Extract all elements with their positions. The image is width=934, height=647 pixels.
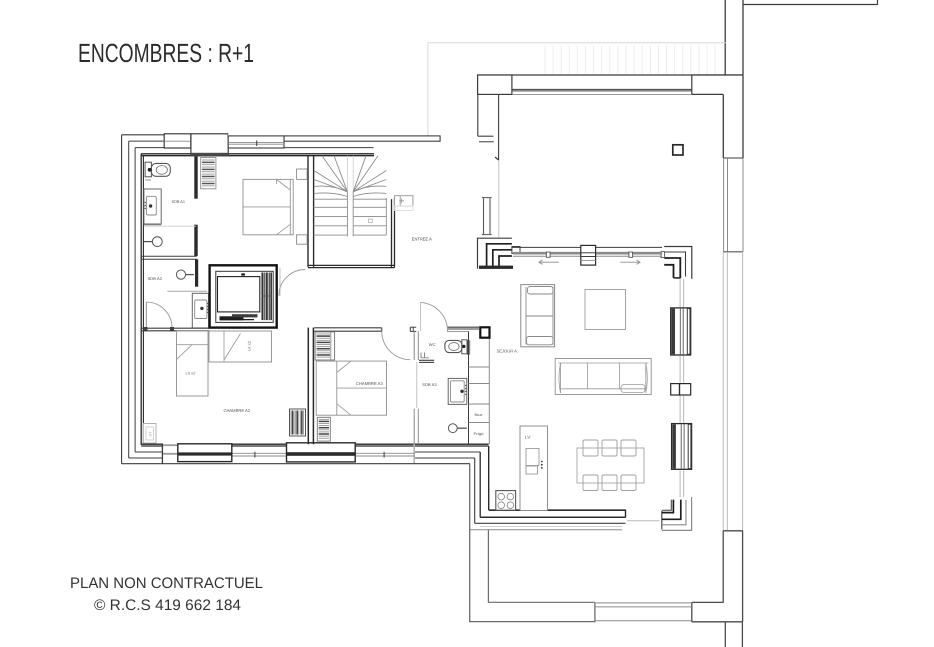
svg-text:Lit x2: Lit x2	[248, 341, 252, 351]
svg-text:LV: LV	[525, 434, 531, 439]
svg-text:GT: GT	[149, 432, 153, 437]
svg-text:Lit x2: Lit x2	[186, 372, 196, 376]
svg-text:CHAMBRE A3: CHAMBRE A3	[356, 381, 384, 386]
svg-text:CHAMBRE A2: CHAMBRE A2	[224, 408, 251, 413]
svg-text:Frigo: Frigo	[474, 431, 484, 436]
svg-text:SDB A3: SDB A3	[422, 382, 437, 387]
svg-text:ENTREE A: ENTREE A	[412, 237, 432, 242]
svg-text:SDB A2: SDB A2	[148, 276, 163, 281]
svg-text:© R.C.S 419 662 184: © R.C.S 419 662 184	[94, 597, 241, 614]
svg-text:SEJOUR A.: SEJOUR A.	[497, 349, 519, 354]
svg-text:SDB A1: SDB A1	[172, 199, 186, 204]
svg-text:PLAN NON CONTRACTUEL: PLAN NON CONTRACTUEL	[70, 575, 263, 592]
svg-text:four: four	[475, 412, 484, 417]
svg-text:ENCOMBRES : R+1: ENCOMBRES : R+1	[78, 38, 254, 68]
svg-text:WC: WC	[429, 342, 436, 347]
